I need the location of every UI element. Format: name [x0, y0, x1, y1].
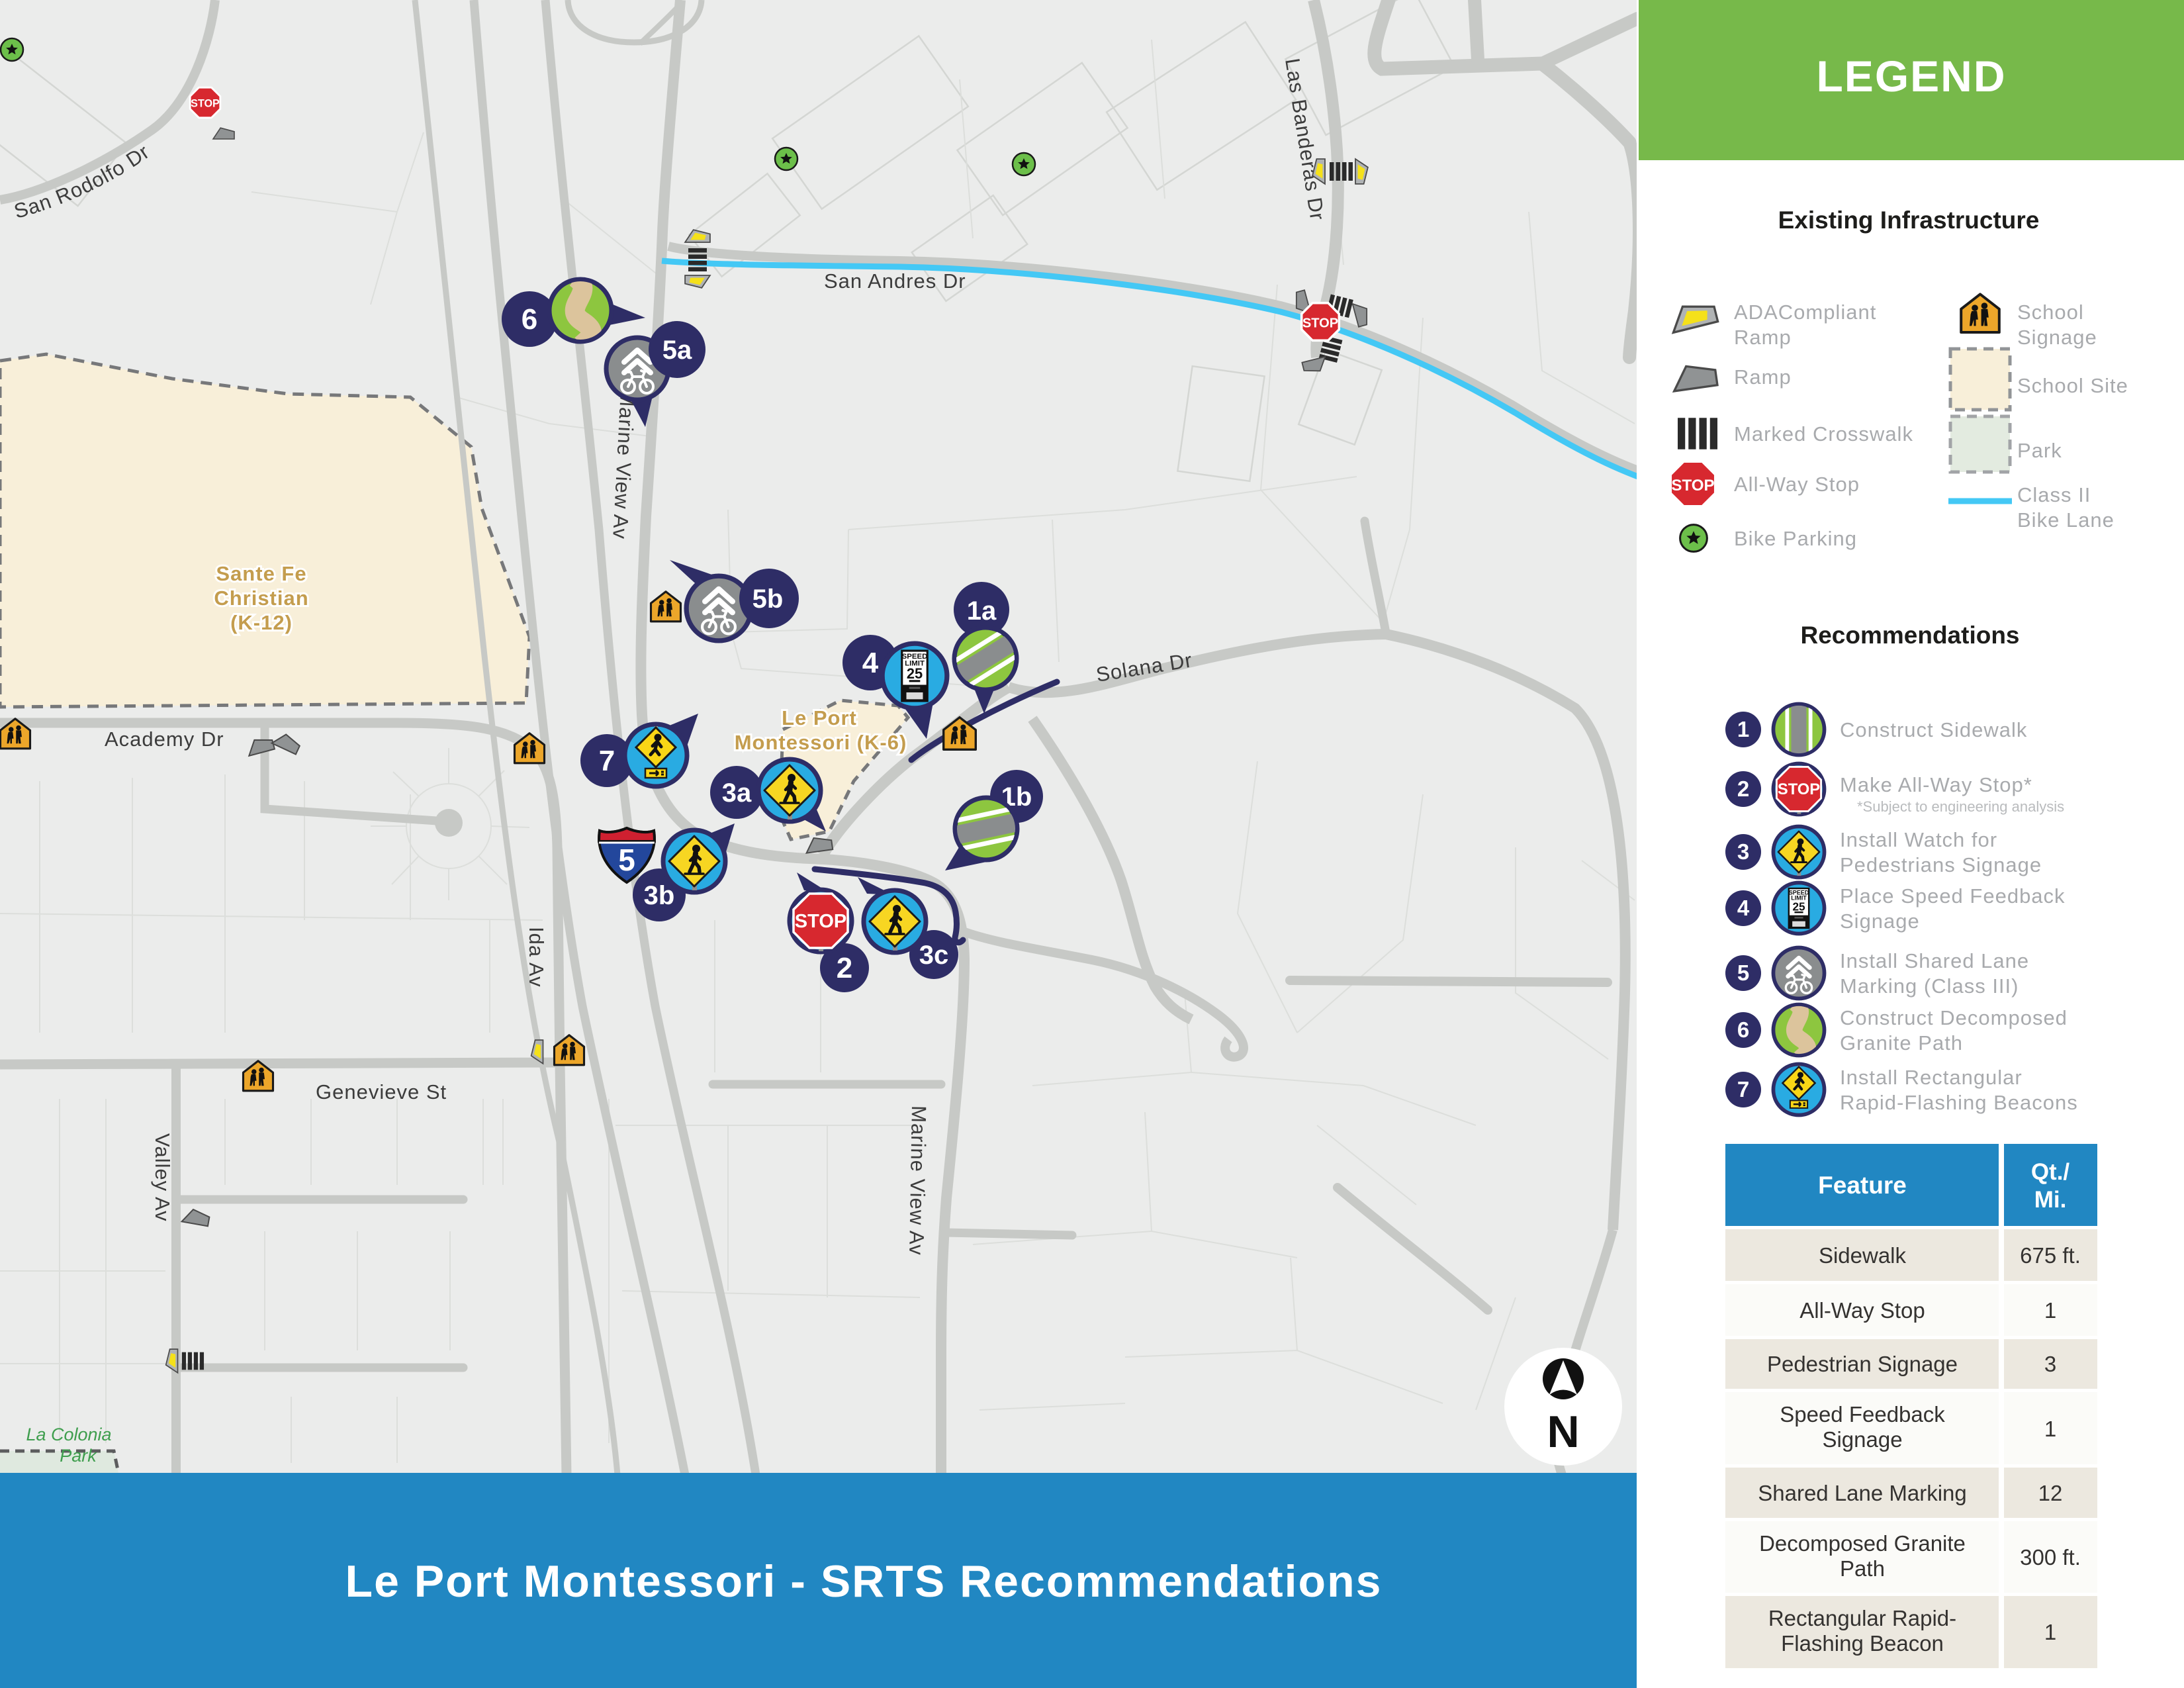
svg-text:7: 7: [599, 745, 615, 777]
svg-text:Signage: Signage: [2017, 326, 2097, 349]
svg-text:School: School: [2017, 301, 2084, 324]
svg-text:N: N: [1547, 1407, 1579, 1457]
svg-text:All-Way Stop: All-Way Stop: [1734, 473, 1860, 496]
svg-text:12: 12: [2038, 1481, 2063, 1505]
svg-text:Park: Park: [60, 1446, 97, 1466]
svg-text:6: 6: [1737, 1017, 1749, 1042]
svg-text:3b: 3b: [644, 881, 675, 910]
svg-text:5: 5: [1737, 961, 1749, 985]
svg-text:Speed Feedback: Speed Feedback: [1780, 1402, 1945, 1427]
svg-text:Feature: Feature: [1818, 1172, 1907, 1199]
svg-text:LEGEND: LEGEND: [1816, 52, 2006, 101]
svg-text:Granite Path: Granite Path: [1840, 1031, 1963, 1055]
svg-text:1: 1: [2044, 1298, 2056, 1323]
svg-text:Install Shared Lane: Install Shared Lane: [1840, 949, 2029, 972]
svg-text:Signage: Signage: [1840, 910, 1920, 933]
svg-text:Rapid-Flashing Beacons: Rapid-Flashing Beacons: [1840, 1091, 2078, 1114]
svg-text:Install Rectangular: Install Rectangular: [1840, 1066, 2023, 1089]
svg-text:Class II: Class II: [2017, 483, 2091, 506]
svg-text:7: 7: [1737, 1077, 1749, 1102]
svg-text:1: 1: [2044, 1417, 2056, 1441]
svg-text:2: 2: [1737, 776, 1749, 801]
svg-text:Place Speed Feedback: Place Speed Feedback: [1840, 884, 2066, 908]
svg-text:Signage: Signage: [1822, 1427, 1902, 1452]
svg-text:Academy Dr: Academy Dr: [105, 727, 224, 751]
svg-text:3: 3: [1737, 839, 1749, 864]
svg-text:Make All-Way Stop*: Make All-Way Stop*: [1840, 773, 2032, 796]
svg-text:ADACompliant: ADACompliant: [1734, 301, 1876, 324]
svg-text:San Andres Dr: San Andres Dr: [824, 269, 966, 293]
svg-text:300 ft.: 300 ft.: [2020, 1545, 2081, 1570]
svg-text:Valley Av: Valley Av: [151, 1133, 174, 1222]
svg-text:Le Port: Le Port: [782, 706, 857, 729]
svg-text:4: 4: [862, 647, 879, 679]
svg-text:Pedestrian Signage: Pedestrian Signage: [1767, 1352, 1958, 1376]
svg-text:(K-12): (K-12): [230, 611, 293, 634]
svg-text:Montessori (K-6): Montessori (K-6): [735, 731, 907, 754]
svg-text:Ramp: Ramp: [1734, 365, 1792, 389]
svg-text:3: 3: [2044, 1352, 2056, 1376]
svg-text:Bike Lane: Bike Lane: [2017, 508, 2115, 532]
svg-text:3c: 3c: [919, 941, 949, 970]
svg-text:Ramp: Ramp: [1734, 326, 1792, 349]
svg-text:Path: Path: [1840, 1556, 1885, 1581]
svg-text:Qt./: Qt./: [2031, 1159, 2070, 1185]
svg-text:1a: 1a: [967, 596, 997, 626]
svg-text:Construct Decomposed: Construct Decomposed: [1840, 1006, 2068, 1029]
svg-text:Construct Sidewalk: Construct Sidewalk: [1840, 718, 2027, 741]
svg-text:5a: 5a: [662, 336, 692, 365]
svg-text:*Subject to engineering analys: *Subject to engineering analysis: [1857, 798, 2064, 815]
svg-text:Ida Av: Ida Av: [525, 927, 548, 988]
svg-text:Bike Parking: Bike Parking: [1734, 527, 1857, 550]
svg-text:Shared Lane Marking: Shared Lane Marking: [1758, 1481, 1967, 1505]
svg-text:Marked Crosswalk: Marked Crosswalk: [1734, 422, 1913, 445]
svg-text:Existing Infrastructure: Existing Infrastructure: [1778, 207, 2040, 234]
svg-text:1: 1: [1737, 717, 1749, 741]
svg-text:School Site: School Site: [2017, 374, 2128, 397]
svg-text:2: 2: [837, 952, 852, 984]
svg-text:Install Watch for: Install Watch for: [1840, 828, 1997, 851]
svg-text:Christian: Christian: [214, 586, 308, 610]
svg-text:6: 6: [522, 303, 537, 336]
svg-text:Decomposed Granite: Decomposed Granite: [1759, 1531, 1966, 1556]
svg-text:Recommendations: Recommendations: [1800, 622, 2019, 649]
svg-text:Genevieve St: Genevieve St: [316, 1080, 447, 1103]
svg-text:3a: 3a: [722, 778, 752, 808]
svg-text:Pedestrians Signage: Pedestrians Signage: [1840, 853, 2042, 876]
svg-text:Le Port Montessori - SRTS Reco: Le Port Montessori - SRTS Recommendation…: [345, 1556, 1383, 1607]
svg-text:1: 1: [2044, 1620, 2056, 1644]
svg-text:Park: Park: [2017, 439, 2062, 462]
svg-text:Marking (Class III): Marking (Class III): [1840, 974, 2019, 998]
svg-text:4: 4: [1737, 896, 1750, 920]
svg-text:Sante Fe: Sante Fe: [216, 562, 306, 585]
svg-text:Sidewalk: Sidewalk: [1819, 1243, 1907, 1268]
svg-text:Marine View Av: Marine View Av: [905, 1105, 931, 1256]
svg-text:5b: 5b: [752, 585, 784, 614]
svg-text:675 ft.: 675 ft.: [2020, 1243, 2081, 1268]
svg-text:Flashing Beacon: Flashing Beacon: [1781, 1631, 1944, 1656]
svg-text:Mi.: Mi.: [2034, 1187, 2067, 1213]
svg-text:All-Way Stop: All-Way Stop: [1799, 1298, 1925, 1323]
svg-text:La Colonia: La Colonia: [26, 1425, 111, 1444]
svg-text:Rectangular Rapid-: Rectangular Rapid-: [1768, 1606, 1956, 1630]
